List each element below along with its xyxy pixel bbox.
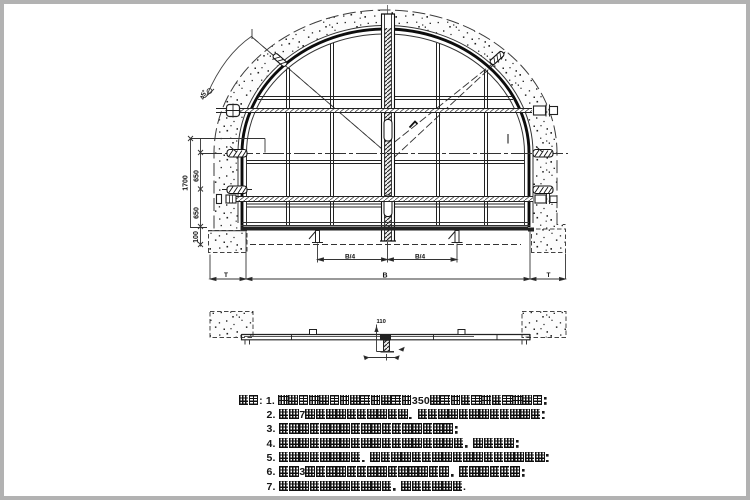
svg-text:650: 650 [194, 207, 201, 219]
svg-text:T: T [224, 272, 228, 279]
svg-text:T: T [547, 272, 551, 279]
svg-text:B: B [382, 273, 387, 280]
svg-text:650: 650 [194, 170, 201, 182]
svg-text:B/4: B/4 [415, 254, 426, 261]
svg-text:B/4: B/4 [345, 254, 356, 261]
svg-text:1700: 1700 [183, 175, 190, 191]
svg-text:110: 110 [377, 319, 386, 325]
svg-text:100: 100 [193, 231, 200, 243]
